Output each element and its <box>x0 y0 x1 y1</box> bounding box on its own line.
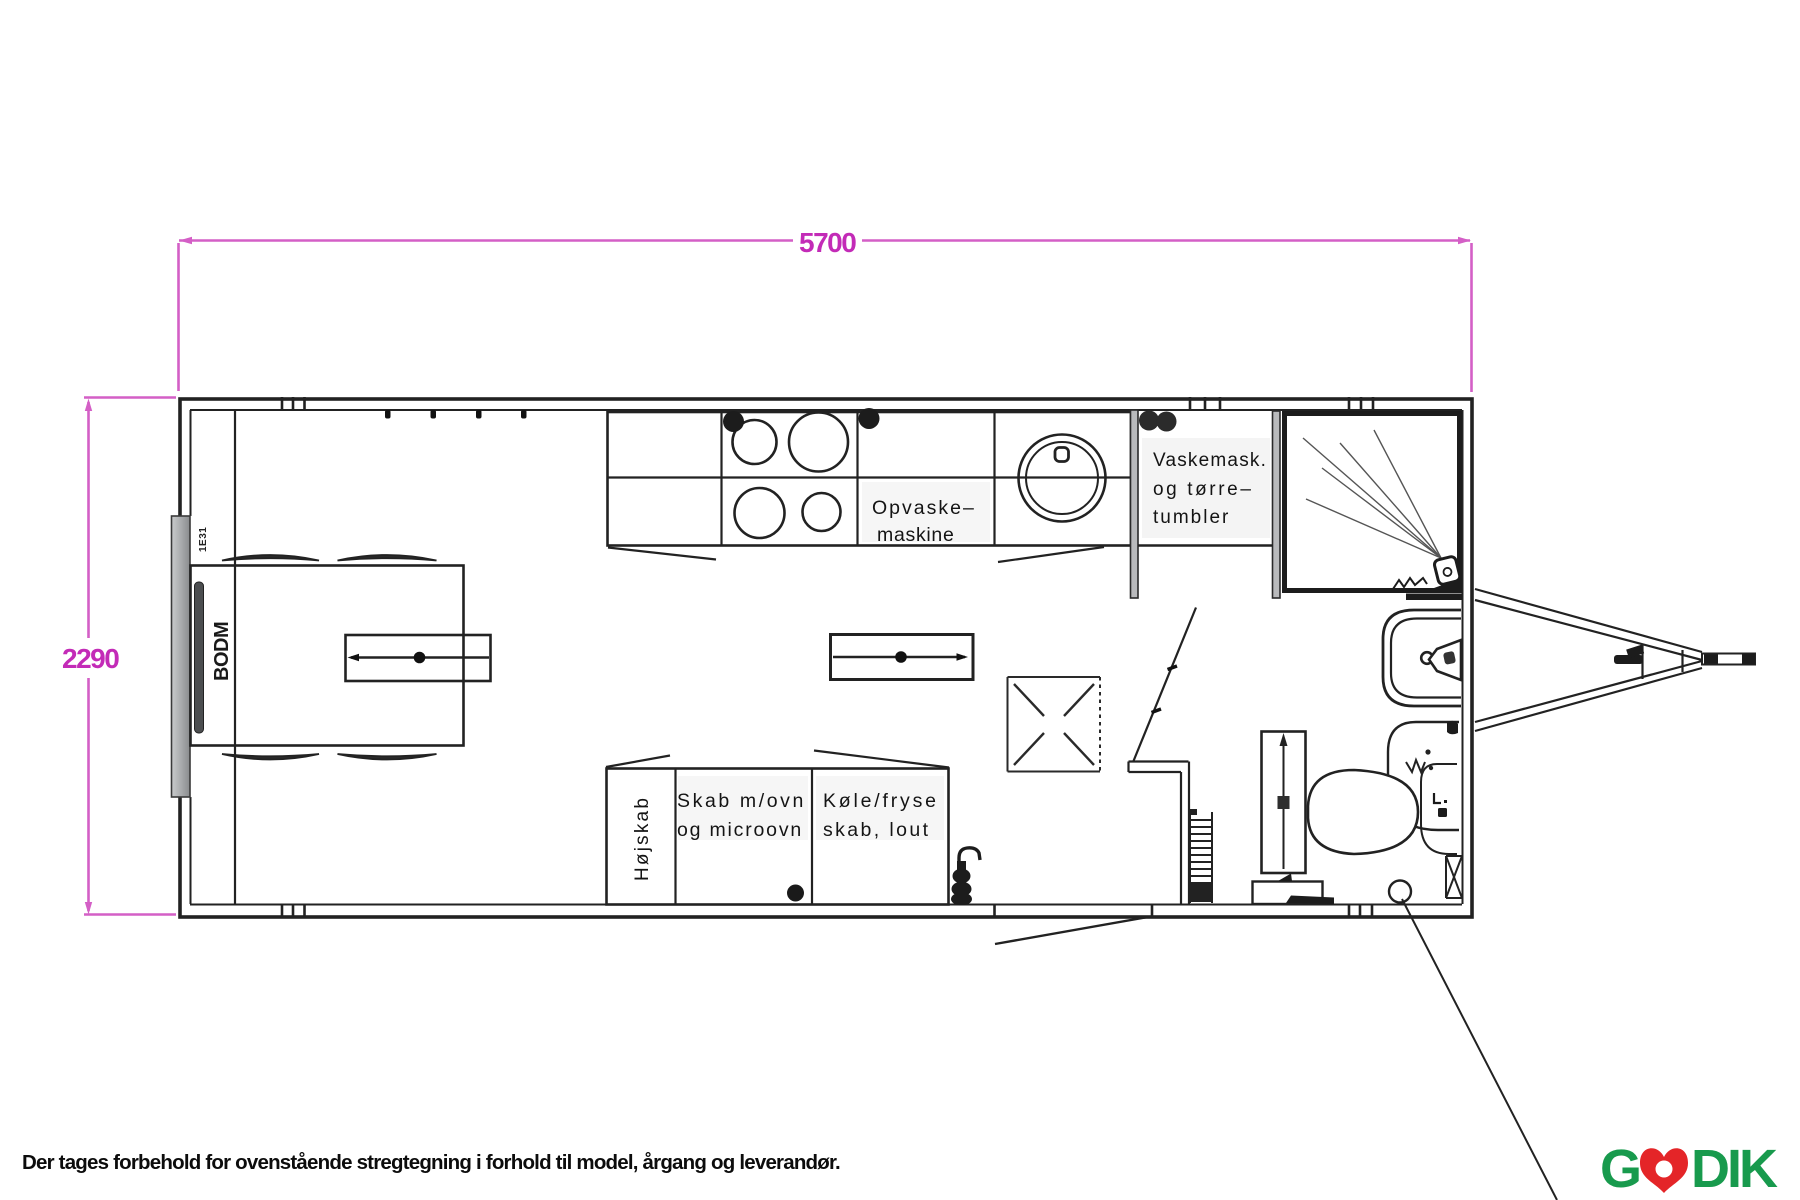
svg-text:Opvaske–: Opvaske– <box>872 497 976 519</box>
svg-text:G: G <box>1600 1139 1642 1199</box>
svg-text:Vaskemask.: Vaskemask. <box>1153 450 1267 471</box>
svg-text:og microovn: og microovn <box>677 819 803 841</box>
svg-text:Skab m/ovn: Skab m/ovn <box>677 790 806 812</box>
svg-text:Højskab: Højskab <box>632 796 653 881</box>
svg-text:tumbler: tumbler <box>1153 507 1230 528</box>
svg-text:og tørre–: og tørre– <box>1153 479 1254 500</box>
svg-text:Køle/fryse: Køle/fryse <box>823 790 939 812</box>
svg-text:5700: 5700 <box>799 227 856 258</box>
svg-text:Der tages forbehold for ovenst: Der tages forbehold for ovenstående stre… <box>22 1151 840 1174</box>
svg-text:skab, lout: skab, lout <box>823 819 930 841</box>
svg-text:DIK: DIK <box>1691 1139 1778 1199</box>
svg-text:maskine: maskine <box>877 524 955 546</box>
svg-text:2290: 2290 <box>62 643 119 674</box>
svg-text:1E31: 1E31 <box>198 527 209 552</box>
svg-text:BODM: BODM <box>211 622 233 681</box>
